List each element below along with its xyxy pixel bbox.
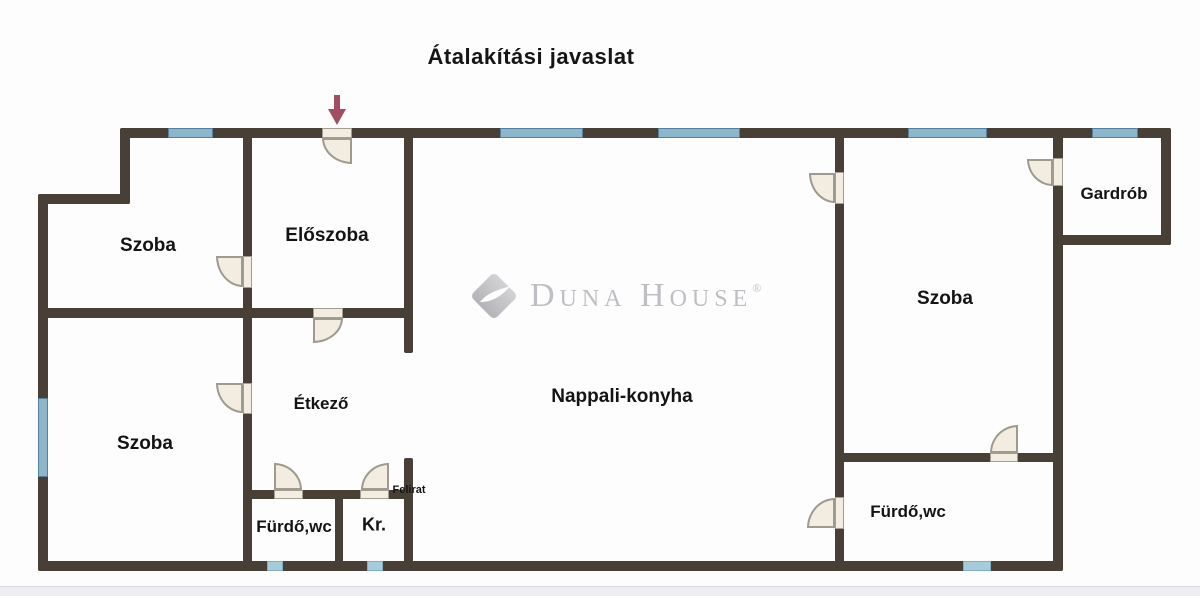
wall-segment — [120, 128, 130, 204]
door-leaf — [243, 383, 252, 414]
door-leaf — [313, 308, 343, 318]
window-marker — [963, 561, 991, 571]
page-edge — [0, 586, 1200, 596]
door-swing-icon — [1027, 159, 1053, 186]
plan-title: Átalakítási javaslat — [428, 44, 635, 70]
window-marker — [1092, 128, 1138, 138]
wall-segment — [38, 194, 130, 204]
room-label-gardrob: Gardrób — [1080, 184, 1147, 204]
brand-watermark: Duna House® — [466, 268, 766, 324]
room-label-felirat: Felirat — [392, 484, 425, 496]
door-leaf — [835, 172, 844, 204]
room-label-szoba-right: Szoba — [917, 288, 973, 310]
wall-segment — [1053, 235, 1171, 245]
entrance-arrow-icon — [326, 94, 348, 128]
wall-segment — [38, 561, 1063, 571]
registered-mark: ® — [752, 281, 766, 295]
wall-segment — [335, 494, 343, 571]
room-label-nappali-konyha: Nappali-konyha — [551, 386, 692, 408]
door-leaf — [360, 490, 389, 499]
watermark-brand-name: Duna House — [530, 277, 752, 314]
wall-segment — [835, 453, 1063, 462]
door-swing-icon — [322, 138, 352, 164]
door-swing-icon — [361, 463, 389, 490]
door-swing-icon — [809, 173, 835, 203]
room-label-szoba-top-left: Szoba — [120, 235, 176, 257]
door-swing-icon — [313, 318, 343, 343]
room-label-furdo-wc-right: Fürdő,wc — [870, 502, 946, 522]
wall-segment — [38, 194, 48, 571]
window-marker — [367, 561, 383, 571]
wall-segment — [243, 128, 252, 571]
duna-house-logo-icon — [466, 268, 522, 324]
wall-segment — [404, 458, 413, 571]
room-label-etkezo: Étkező — [294, 394, 349, 414]
wall-segment — [1161, 128, 1171, 245]
watermark-text: Duna House® — [530, 279, 766, 313]
door-leaf — [835, 497, 844, 529]
window-marker — [500, 128, 583, 138]
room-label-eloszoba: Előszoba — [285, 225, 368, 247]
wall-segment — [120, 128, 1171, 138]
door-leaf — [990, 453, 1018, 462]
wall-segment — [38, 308, 413, 318]
wall-segment — [404, 128, 413, 353]
door-swing-icon — [216, 256, 243, 287]
wall-segment — [1053, 128, 1063, 571]
door-leaf — [274, 490, 303, 499]
room-label-kamra: Kr. — [362, 515, 386, 536]
floor-plan: Átalakítási javaslat S — [0, 0, 1200, 596]
room-label-szoba-bottom-left: Szoba — [117, 433, 173, 455]
room-label-furdo-wc-left: Fürdő,wc — [256, 517, 332, 537]
window-marker — [908, 128, 987, 138]
door-swing-icon — [990, 425, 1018, 453]
window-marker — [267, 561, 283, 571]
door-swing-icon — [216, 383, 243, 413]
door-swing-icon — [274, 463, 302, 490]
door-leaf — [322, 128, 352, 138]
door-leaf — [243, 256, 252, 288]
window-marker — [168, 128, 213, 138]
window-marker — [658, 128, 740, 138]
door-leaf — [1053, 158, 1063, 186]
door-swing-icon — [807, 498, 835, 528]
window-marker — [38, 398, 48, 477]
